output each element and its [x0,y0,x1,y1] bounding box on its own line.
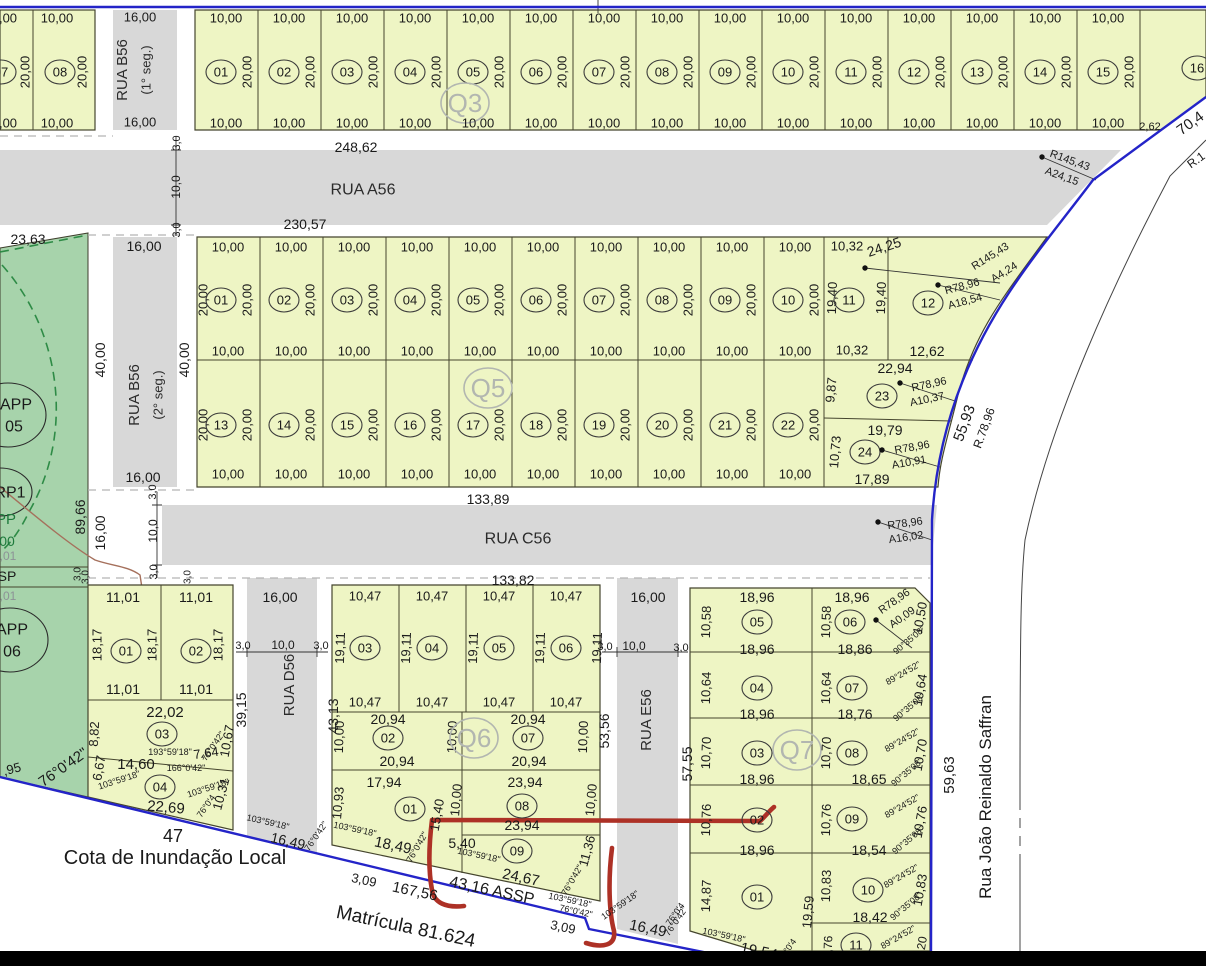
map-label: 22,94 [877,360,912,376]
map-label: 20,00 [74,56,89,89]
map-label: 10,00 [1029,10,1062,25]
map-label: 23,94 [504,817,539,833]
map-label: 10,00 [338,343,371,358]
map-label: 10,00 [338,466,371,481]
map-label: 57,55 [679,746,695,781]
map-label: 11,01 [106,589,140,605]
map-label: 20,00 [365,284,380,317]
map-label: 02 [277,292,291,307]
map-label: 15 [1096,64,1110,79]
map-label: 10,76 [818,803,834,836]
map-label: 02 [277,64,291,79]
map-label: 10,00 [716,466,749,481]
map-label: 20,00 [554,284,569,317]
map-label: 07 [521,730,535,745]
map-label: 01 [403,801,417,816]
map-label: 08 [845,745,859,760]
map-label: 20,00 [806,56,821,89]
map-label: 10,00 [275,466,308,481]
map-label: 17 [466,417,480,432]
map-label: 13 [214,417,228,432]
map-label: 10,00 [1092,115,1125,130]
map-label: 10,00 [653,239,686,254]
map-label: 10,00 [716,343,749,358]
map-label: 10,70 [818,736,834,769]
map-label: 20,94 [511,753,546,769]
map-label: 20,00 [491,409,506,442]
map-label: 20,00 [806,284,821,317]
map-label: 3,0 [673,642,688,654]
map-label: 10,47 [550,694,583,709]
map-label: 20,00 [17,56,32,89]
map-label: 14 [1033,64,1047,79]
map-label: 07 [592,292,606,307]
radius-point-dot [897,380,902,385]
map-label: 20,00 [869,56,884,89]
map-label: 10,00 [588,115,621,130]
radius-point-dot [935,282,940,287]
map-label: 03 [340,292,354,307]
map-label: 00 [0,533,15,549]
map-label: 10,00 [653,466,686,481]
map-label: 19,11 [332,632,348,664]
map-label: 04 [403,292,417,307]
map-label: 05 [466,292,480,307]
map-label: 10,00 [527,343,560,358]
map-label: 10,00 [966,10,999,25]
map-label: 19,40 [873,281,889,314]
map-label: PP [0,511,16,528]
map-label: 20,00 [743,284,758,317]
map-label: 10,0 [169,175,183,199]
map-label: 06 [3,643,21,660]
map-label: Q3 [448,88,483,118]
map-label: 20,00 [428,284,443,317]
map-label: 11,01 [179,589,213,605]
map-label: 01 [214,64,228,79]
map-label: 05 [750,614,764,629]
map-label: 20,00 [554,56,569,89]
map-label: 22 [781,417,795,432]
map-label: 02 [750,812,764,827]
map-label: 10,47 [550,588,583,603]
subdivision-plat-map: ,0010,0016,0010,0010,0010,0010,0010,0010… [0,0,1206,966]
map-label: 10,00 [41,115,74,130]
map-label: 10,00 [464,239,497,254]
map-label: 20,00 [617,284,632,317]
map-label: 10,73 [826,435,844,469]
map-label: 3,0 [147,484,159,499]
map-label: 10,00 [210,115,243,130]
map-label: RUA B56 [126,364,143,426]
map-label: 09 [718,64,732,79]
map-label: 07 [0,64,8,79]
map-label: 10,00 [590,239,623,254]
map-label: 07 [592,64,606,79]
map-label: 18,76 [837,706,872,722]
map-label: 19 [592,417,606,432]
street-rua-b56-seg2 [113,237,177,487]
map-label: 20,00 [195,409,210,442]
map-label: 10,00 [336,10,369,25]
map-label: 20,94 [370,711,405,727]
map-label: 10 [781,292,795,307]
map-label: 01 [750,889,764,904]
map-label: 07 [845,680,859,695]
map-label: 10,47 [483,588,516,603]
map-label: 133,89 [467,491,510,507]
map-label: SP [0,568,16,584]
map-label: 10,00 [273,115,306,130]
radius-point-dot [875,519,880,524]
map-label: 20,94 [510,711,545,727]
map-label: 03 [155,726,169,741]
radius-point-dot [879,447,884,452]
map-label: 10,00 [212,466,245,481]
map-label: ,00 [0,10,17,25]
map-label: 9,87 [822,377,839,404]
map-label: 10,00 [653,343,686,358]
map-label: 10,00 [590,466,623,481]
map-label: 20,00 [491,56,506,89]
map-label: 248,62 [335,139,378,155]
map-label: 20,00 [428,409,443,442]
map-label: 06 [529,64,543,79]
map-label: 08 [655,292,669,307]
map-label: 16,00 [124,114,157,129]
radius-point-dot [1039,154,1044,159]
map-label: 10,32 [836,342,869,357]
map-label: 10,00 [210,10,243,25]
map-label: 10,00 [651,115,684,130]
map-label: RUA D56 [281,654,298,717]
map-label: 14,87 [698,879,714,912]
map-label: 20,00 [239,284,254,317]
map-label: 20,00 [932,56,947,89]
map-label: 3,0 [235,640,250,652]
map-label: 10,00 [840,10,873,25]
map-label: 10,64 [818,671,834,704]
map-label: 10,00 [462,10,495,25]
map-label: 10,00 [716,239,749,254]
map-label: 18,42 [852,909,887,925]
map-label: 18,54 [851,842,886,858]
map-label: 10 [861,882,875,897]
map-label: 02 [189,643,203,658]
map-label: 10,00 [582,783,600,817]
map-label: 10,47 [349,588,382,603]
map-label: 40,00 [92,342,108,377]
map-label: 10,00 [399,10,432,25]
map-label: 59,63 [941,756,958,794]
map-label: 20,00 [195,284,210,317]
map-label: 16,00 [125,469,160,485]
map-label: 10,00 [275,343,308,358]
map-label: 18,17 [210,629,225,662]
map-label: 10,00 [462,115,495,130]
map-label: 19,59 [799,895,817,929]
map-label: 10,00 [903,10,936,25]
radius-point-dot [862,265,867,270]
map-label: 20,00 [302,284,317,317]
map-label: 11 [842,292,856,307]
map-label: 10,47 [349,694,382,709]
map-label: 11 [844,64,858,79]
map-label: 11 [849,937,863,952]
map-label: ,76 [821,935,836,952]
map-label: 10,00 [779,239,812,254]
map-label: 10,93 [329,786,347,820]
map-label: 18,86 [837,641,872,657]
map-label: 166°0'42" [167,763,206,773]
map-label: 14 [277,417,291,432]
map-label: 10,00 [401,343,434,358]
map-label: 10,00 [275,239,308,254]
map-label: 10,00 [777,115,810,130]
map-label: 20,94 [379,753,414,769]
map-label: 15 [340,417,354,432]
map-label: 08 [515,798,529,813]
map-label: 10,00 [1092,10,1125,25]
map-label: 17,94 [366,774,401,790]
map-label: 18,17 [89,629,104,662]
street-rua-e56 [617,578,678,944]
map-label: 10,00 [714,10,747,25]
map-label: 16,00 [630,589,665,605]
map-label: 06 [843,614,857,629]
map-label: 06 [529,292,543,307]
radius-point-dot [873,617,878,622]
map-label: 11,01 [179,681,213,697]
map-label: 10,0 [622,639,646,653]
map-label: 10,0 [146,519,160,543]
map-label: 01 [214,292,228,307]
map-label: 10,00 [401,239,434,254]
map-label: 10,76 [698,803,714,836]
map-label: RUA A56 [331,181,396,198]
map-label: 12 [921,295,935,310]
map-label: 10,58 [698,605,714,638]
map-label: 18,96 [834,589,869,605]
map-label: 2,62 [1139,121,1160,133]
map-label: 09 [510,843,524,858]
map-label: 23 [875,388,889,403]
map-label: 20,00 [806,409,821,442]
map-label: 09 [718,292,732,307]
map-label: 04 [153,779,167,794]
map-label: 20,00 [428,56,443,89]
map-label: 23,94 [507,774,542,790]
map-label: Q6 [457,723,492,753]
map-label: 06 [559,640,573,655]
map-label: 10,00 [527,466,560,481]
map-label: 10 [781,64,795,79]
map-label: 08 [53,64,67,79]
map-label: 10,00 [588,10,621,25]
map-label: 20,00 [743,56,758,89]
map-label: 18,96 [739,706,774,722]
map-label: 18,96 [739,771,774,787]
map-label: 16,00 [92,515,108,550]
map-label: 17,89 [854,471,889,487]
map-label: 10,00 [779,466,812,481]
map-label: 10,64 [698,671,714,704]
map-label: 20,00 [302,56,317,89]
map-label: 133,82 [492,572,535,588]
map-label: 10,00 [338,239,371,254]
map-label: Rua João Reinaldo Saffran [976,695,995,899]
map-label: 19,11 [398,632,414,664]
bottom-black-bar [0,951,1206,966]
map-label: 10,00 [777,10,810,25]
map-label: 16 [403,417,417,432]
map-label: 3,0 [171,135,183,150]
map-label: 20,00 [365,56,380,89]
map-label: 11,01 [106,681,140,697]
map-label: 16,00 [124,9,157,24]
map-label: Q7 [780,735,815,765]
map-label: 16 [1190,60,1204,75]
map-label: 10,00 [273,10,306,25]
map-label: 10,00 [527,239,560,254]
map-label: APP [0,621,28,638]
map-label: ,01 [0,549,17,563]
map-label: 39,15 [233,692,249,727]
map-label: 03 [750,745,764,760]
map-label: 16,00 [262,589,297,605]
map-label: 20,00 [680,56,695,89]
map-label: 53,56 [596,713,612,748]
map-label: 18,17 [144,629,159,662]
map-label: 10,00 [41,10,74,25]
map-label: 22,69 [147,797,186,817]
map-label: RP1 [0,484,26,501]
map-label: 40,00 [176,342,192,377]
map-label: 3,0 [313,640,328,652]
map-label: 10,83 [818,869,834,902]
map-label: 10,00 [212,239,245,254]
map-label: 230,57 [284,216,327,232]
map-label: 10,00 [575,720,591,753]
map-label: 24 [858,444,872,459]
map-label: 12 [907,64,921,79]
map-label: Q5 [471,373,506,403]
map-label: 10,00 [447,783,465,817]
map-label: 10,0 [271,638,295,652]
map-label: RUA E56 [638,689,655,751]
map-label: 20,00 [743,409,758,442]
map-label: 08 [655,64,669,79]
map-label: 10,00 [525,10,558,25]
map-label: 10,00 [464,466,497,481]
map-label: 19,11 [465,632,481,664]
map-label: 10,00 [331,720,347,753]
map-label: 10,00 [651,10,684,25]
map-label: 10,32 [831,238,864,253]
map-label: 18,96 [739,641,774,657]
map-label: APP [0,396,32,413]
map-label: 10,00 [401,466,434,481]
map-label: 10,00 [779,343,812,358]
map-label: 21 [718,417,732,432]
map-label: 22,02 [146,704,184,721]
map-label: 04 [750,680,764,695]
map-label: 02 [381,730,395,745]
map-label: 01 [119,643,133,658]
map-label: 20,00 [365,409,380,442]
map-label: (2° seg.) [150,370,165,419]
map-label: 10,70 [698,736,714,769]
map-label: 18,96 [739,842,774,858]
map-label: 3,0 [80,570,91,584]
map-label: 20,00 [554,409,569,442]
map-label: 18,65 [851,771,886,787]
map-label: Cota de Inundação Local [64,847,286,869]
map-label: 47 [163,826,183,846]
map-label: 19,79 [867,422,902,438]
map-label: 23,63 [10,231,45,247]
map-label: 18 [529,417,543,432]
map-label: 16,00 [126,238,161,254]
map-label: 19,40 [824,281,840,314]
map-label: 10,47 [416,588,449,603]
map-label: 20 [655,417,669,432]
map-label: 89,66 [72,499,88,534]
map-label: 3,0 [597,641,612,653]
map-label: 05 [466,64,480,79]
map-label: 10,00 [966,115,999,130]
map-label: 20,00 [491,284,506,317]
map-label: 10,00 [590,343,623,358]
plat-map-screenshot: ,0010,0016,0010,0010,0010,0010,0010,0010… [0,0,1206,966]
map-label: ,00 [0,115,17,130]
map-label: 20,00 [680,409,695,442]
map-label: 20,00 [995,56,1010,89]
map-label: 10,58 [818,605,834,638]
map-label: 20,00 [680,284,695,317]
map-label: 20,00 [239,56,254,89]
map-label: 20,00 [1058,56,1073,89]
map-label: 10,00 [714,115,747,130]
map-label: 18,96 [739,589,774,605]
map-label: 20,00 [617,56,632,89]
map-label: 20,00 [617,409,632,442]
map-label: 3,0 [171,222,183,237]
map-label: 19,11 [532,632,548,664]
map-label: 20,00 [239,409,254,442]
map-label: 10,00 [336,115,369,130]
map-label: 03 [358,640,372,655]
map-label: (1° seg.) [138,45,153,94]
map-label: 3,0 [148,564,160,579]
map-label: RUA B56 [114,39,131,101]
map-label: 09 [845,811,859,826]
map-label: 10,00 [399,115,432,130]
map-label: 10,47 [483,694,516,709]
map-label: 10,00 [903,115,936,130]
map-label: 12,62 [909,343,944,359]
map-label: 04 [425,640,439,655]
map-label: 13 [970,64,984,79]
map-label: 05 [5,418,23,435]
map-label: 10,00 [212,343,245,358]
map-label: 10,00 [464,343,497,358]
map-label: 10,47 [416,694,449,709]
map-label: 10,00 [840,115,873,130]
map-label: 05 [492,640,506,655]
map-label: RUA C56 [485,530,552,547]
map-label: 8,82 [86,721,102,747]
